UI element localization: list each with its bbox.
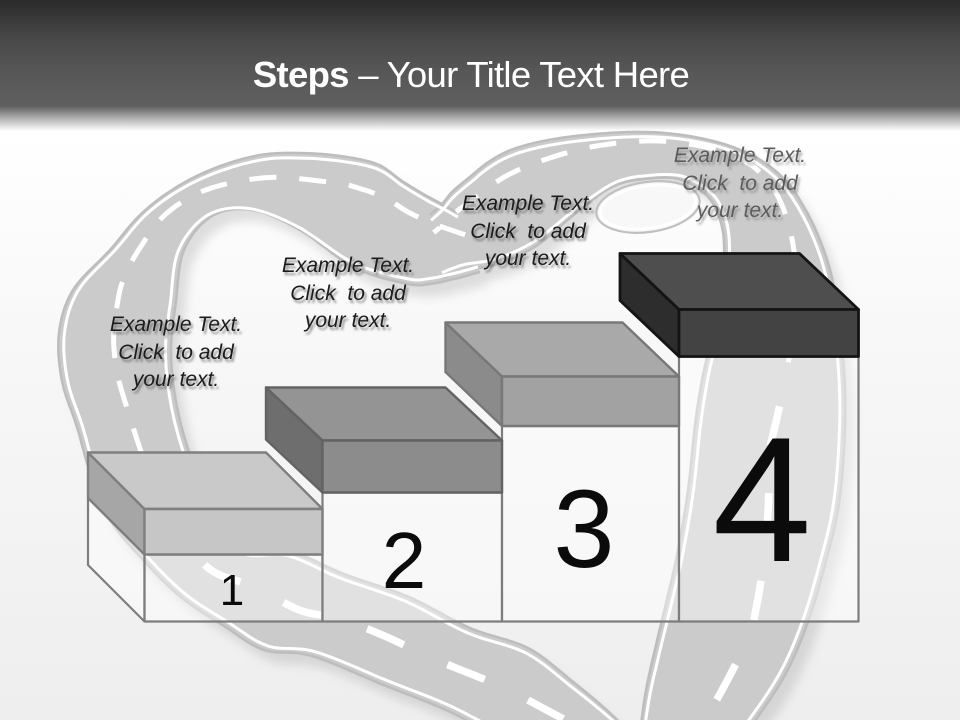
svg-text:2: 2 (382, 516, 427, 605)
svg-text:4: 4 (713, 400, 812, 599)
svg-text:1: 1 (220, 566, 244, 615)
svg-text:3: 3 (553, 468, 614, 591)
